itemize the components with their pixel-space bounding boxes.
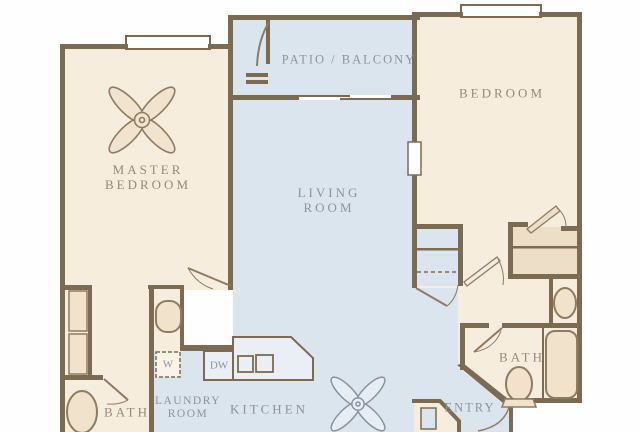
label-laundry-room: LAUNDRY ROOM	[155, 395, 221, 421]
sink-icon	[156, 301, 181, 332]
floor-plan: MASTER BEDROOM LIVING ROOM BEDROOM PATIO…	[0, 0, 640, 432]
linen-closet-floor	[417, 229, 459, 286]
bathtub-icon	[543, 327, 580, 401]
floor-fills	[60, 12, 582, 432]
label-bedroom: BEDROOM	[459, 86, 545, 101]
kitchen-sink-icon	[238, 356, 253, 372]
master-bedroom-label-line2: BEDROOM	[105, 177, 191, 192]
laundry-label-line1: LAUNDRY	[155, 395, 221, 408]
bedroom-bay-window	[461, 5, 541, 17]
sink-icon	[554, 288, 576, 318]
living-room-label-line2: ROOM	[298, 200, 361, 215]
label-bath: BATH	[499, 350, 545, 365]
label-kitchen: KITCHEN	[230, 402, 308, 417]
master-bay-window	[126, 36, 210, 49]
label-master-bedroom: MASTER BEDROOM	[105, 162, 191, 192]
living-room-label-line1: LIVING	[298, 185, 361, 200]
label-dishwasher: DW	[210, 359, 228, 374]
kitchen-sink-icon	[256, 355, 273, 372]
master-bedroom-label-line1: MASTER	[105, 162, 191, 177]
label-washer: W	[163, 358, 173, 373]
label-entry: ENTRY	[445, 401, 496, 416]
walkin-closet-floor	[513, 227, 577, 274]
label-patio-balcony: PATIO / BALCONY	[282, 53, 416, 68]
toilet-icon	[67, 391, 97, 432]
living-bedroom-door	[408, 142, 421, 175]
laundry-label-line2: ROOM	[155, 408, 221, 421]
label-living-room: LIVING ROOM	[298, 185, 361, 215]
label-master-bath: BATH	[104, 405, 150, 420]
